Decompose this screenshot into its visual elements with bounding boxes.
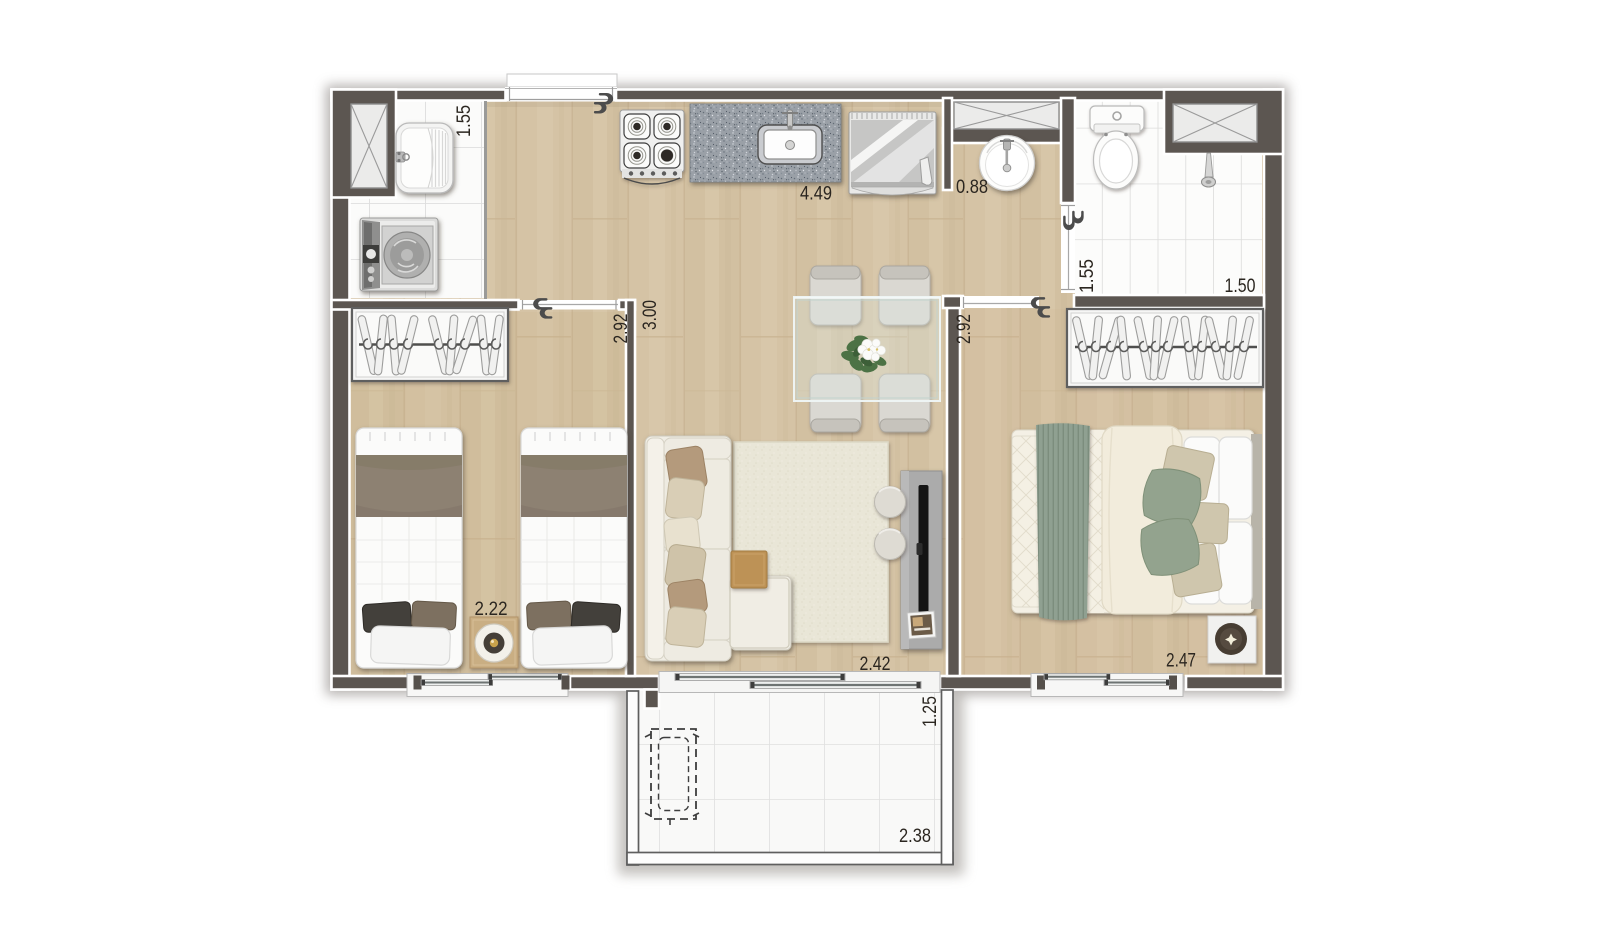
svg-text:2.22: 2.22	[475, 599, 508, 620]
svg-text:3.00: 3.00	[640, 300, 661, 330]
svg-text:4.49: 4.49	[800, 184, 832, 205]
svg-text:2.92: 2.92	[611, 314, 632, 344]
svg-text:1.25: 1.25	[920, 696, 941, 727]
svg-text:2.42: 2.42	[860, 654, 891, 675]
svg-text:2.38: 2.38	[899, 826, 931, 847]
svg-text:2.47: 2.47	[1166, 651, 1196, 672]
svg-text:1.50: 1.50	[1225, 276, 1256, 297]
svg-text:1.55: 1.55	[454, 105, 475, 137]
svg-text:1.55: 1.55	[1077, 259, 1098, 293]
svg-text:2.92: 2.92	[954, 314, 975, 344]
svg-text:0.88: 0.88	[956, 177, 988, 198]
